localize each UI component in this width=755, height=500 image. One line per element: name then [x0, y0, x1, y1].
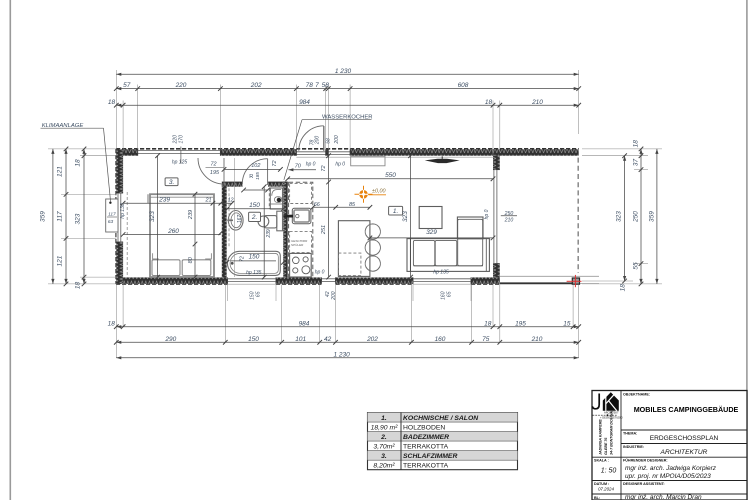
- svg-text:202: 202: [366, 336, 378, 343]
- svg-text:DATUM :: DATUM :: [594, 482, 609, 486]
- svg-text:3.: 3.: [169, 179, 175, 186]
- svg-text:210: 210: [531, 99, 543, 106]
- svg-text:18: 18: [108, 320, 116, 327]
- svg-text:3.: 3.: [381, 453, 387, 460]
- svg-text:72: 72: [272, 160, 278, 166]
- svg-text:66: 66: [314, 202, 321, 208]
- svg-text:34-7 BONTGRAM DOLINA: 34-7 BONTGRAM DOLINA: [610, 410, 614, 455]
- svg-text:hp 0: hp 0: [315, 269, 325, 275]
- svg-text:608: 608: [458, 82, 469, 89]
- svg-text:58: 58: [322, 82, 330, 89]
- svg-text:202: 202: [250, 82, 262, 89]
- svg-text:220: 220: [175, 82, 187, 89]
- svg-text:195: 195: [515, 320, 526, 327]
- svg-text:18: 18: [484, 320, 492, 327]
- svg-text:KOCHNISCHE / SALON: KOCHNISCHE / SALON: [403, 415, 479, 422]
- svg-text:±0,00: ±0,00: [372, 188, 385, 194]
- svg-text:200: 200: [315, 136, 321, 146]
- svg-text:260: 260: [167, 228, 179, 235]
- svg-text:323: 323: [616, 211, 623, 222]
- svg-text:72: 72: [210, 162, 216, 168]
- svg-text:1.: 1.: [381, 415, 387, 422]
- svg-text:984: 984: [299, 320, 310, 327]
- svg-text:37: 37: [633, 159, 640, 167]
- svg-text:250: 250: [633, 211, 640, 223]
- svg-text:323: 323: [75, 213, 82, 224]
- svg-text:ERDGESCHOSSPLAN: ERDGESCHOSSPLAN: [650, 435, 719, 442]
- svg-text:85: 85: [349, 202, 356, 208]
- svg-text:101: 101: [295, 336, 306, 343]
- svg-text:58: 58: [326, 138, 332, 144]
- svg-text:239: 239: [266, 229, 272, 239]
- svg-text:2.: 2.: [251, 214, 258, 221]
- svg-text:290: 290: [164, 336, 176, 343]
- svg-text:121: 121: [57, 166, 64, 177]
- svg-text:359: 359: [40, 211, 47, 222]
- svg-text:TERRAKOTTA: TERRAKOTTA: [403, 444, 449, 451]
- svg-text:1 230: 1 230: [333, 352, 350, 359]
- svg-text:R: R: [249, 174, 253, 180]
- svg-text:hp 135: hp 135: [246, 270, 262, 276]
- svg-text:200: 200: [334, 135, 340, 145]
- svg-text:200: 200: [331, 291, 337, 301]
- svg-text:BL:: BL:: [594, 496, 600, 500]
- svg-text:65: 65: [446, 291, 452, 297]
- svg-text:167: 167: [237, 215, 243, 224]
- svg-text:80: 80: [188, 256, 194, 263]
- svg-text:984: 984: [299, 99, 310, 106]
- svg-text:8,20m²: 8,20m²: [373, 463, 395, 470]
- svg-text:3,70m²: 3,70m²: [373, 444, 395, 451]
- svg-text:160: 160: [435, 336, 446, 343]
- svg-text:SCHLAFZIMMER: SCHLAFZIMMER: [403, 453, 457, 460]
- svg-text:hp 0: hp 0: [306, 161, 316, 167]
- svg-text:18: 18: [108, 99, 116, 106]
- svg-text:hp 125: hp 125: [172, 159, 188, 165]
- svg-text:ARCHITEKTUR: ARCHITEKTUR: [660, 449, 708, 456]
- svg-text:170: 170: [178, 135, 184, 144]
- svg-text:BADEZIMMER: BADEZIMMER: [403, 434, 449, 441]
- svg-text:121: 121: [57, 255, 64, 266]
- svg-text:18: 18: [75, 282, 82, 290]
- svg-text:117: 117: [57, 211, 64, 222]
- svg-text:HOLZBODEN: HOLZBODEN: [403, 425, 445, 432]
- svg-text:15: 15: [563, 320, 571, 327]
- svg-text:210: 210: [531, 336, 543, 343]
- svg-text:FÜHRENDER DESIGNER:: FÜHRENDER DESIGNER:: [623, 458, 668, 463]
- svg-text:150: 150: [249, 254, 260, 261]
- svg-text:63: 63: [108, 219, 114, 225]
- svg-text:250: 250: [504, 211, 514, 217]
- svg-text:GLEBE 76: GLEBE 76: [604, 437, 608, 455]
- svg-text:TERRAKOTTA: TERRAKOTTA: [403, 463, 449, 470]
- svg-text:323: 323: [149, 211, 156, 222]
- svg-text:OBJEKTNAME:: OBJEKTNAME:: [623, 393, 650, 397]
- svg-text:210: 210: [504, 218, 514, 224]
- svg-text:12: 12: [228, 198, 234, 204]
- svg-text:7: 7: [315, 82, 319, 89]
- svg-text:18: 18: [485, 99, 493, 106]
- svg-text:329: 329: [426, 229, 437, 236]
- svg-text:72: 72: [321, 165, 327, 171]
- svg-text:mgr inż. arch. Jadwiga Korpier: mgr inż. arch. Jadwiga Korpierz: [625, 465, 717, 472]
- svg-text:2.: 2.: [380, 434, 387, 441]
- svg-text:70: 70: [295, 163, 302, 169]
- svg-text:SPÜLER: SPÜLER: [291, 243, 304, 247]
- svg-text:hp 135: hp 135: [433, 270, 449, 276]
- svg-text:upr. proj. nr MPOIA/D05/2023: upr. proj. nr MPOIA/D05/2023: [625, 473, 711, 480]
- svg-text:hp 0: hp 0: [335, 161, 345, 167]
- svg-text:18: 18: [620, 284, 627, 292]
- svg-text:42: 42: [324, 336, 332, 343]
- svg-text:1 230: 1 230: [335, 68, 352, 75]
- svg-text:21: 21: [204, 198, 211, 204]
- svg-text:185: 185: [255, 172, 260, 180]
- svg-text:JADWIGA KAMPERE: JADWIGA KAMPERE: [599, 419, 603, 455]
- svg-text:1: 50: 1: 50: [601, 468, 617, 475]
- svg-text:18: 18: [633, 140, 640, 148]
- svg-text:MOBILES CAMPINGGEBÄUDE: MOBILES CAMPINGGEBÄUDE: [634, 405, 739, 414]
- svg-text:75: 75: [482, 336, 490, 343]
- svg-text:THEMA:: THEMA:: [623, 432, 637, 436]
- svg-text:55: 55: [633, 262, 640, 270]
- svg-text:1.: 1.: [393, 208, 399, 215]
- svg-text:239: 239: [158, 197, 170, 204]
- svg-text:78: 78: [306, 82, 314, 89]
- svg-text:DESIGNER ASSISTENT:: DESIGNER ASSISTENT:: [623, 482, 665, 486]
- svg-text:239: 239: [188, 210, 194, 220]
- svg-text:hp 0: hp 0: [484, 209, 490, 219]
- svg-text:07.2024: 07.2024: [598, 487, 614, 492]
- svg-text:hp 130: hp 130: [120, 203, 126, 219]
- svg-text:102: 102: [251, 163, 260, 169]
- svg-text:150: 150: [248, 336, 259, 343]
- svg-text:323: 323: [402, 211, 409, 222]
- svg-text:150: 150: [249, 202, 260, 209]
- svg-text:72: 72: [240, 256, 246, 262]
- svg-text:251: 251: [321, 225, 327, 235]
- svg-text:359: 359: [648, 211, 655, 222]
- svg-text:mgr inż. arch. Marcin Dran: mgr inż. arch. Marcin Dran: [625, 494, 702, 500]
- svg-text:18,90 m²: 18,90 m²: [371, 425, 399, 432]
- svg-text:550: 550: [385, 172, 396, 179]
- svg-text:65: 65: [255, 291, 261, 297]
- svg-text:57: 57: [123, 82, 131, 89]
- svg-text:195: 195: [210, 170, 220, 176]
- svg-text:18: 18: [75, 159, 82, 167]
- svg-text:SKALA :: SKALA :: [594, 459, 609, 463]
- svg-text:INDUSTRIE:: INDUSTRIE:: [623, 445, 644, 449]
